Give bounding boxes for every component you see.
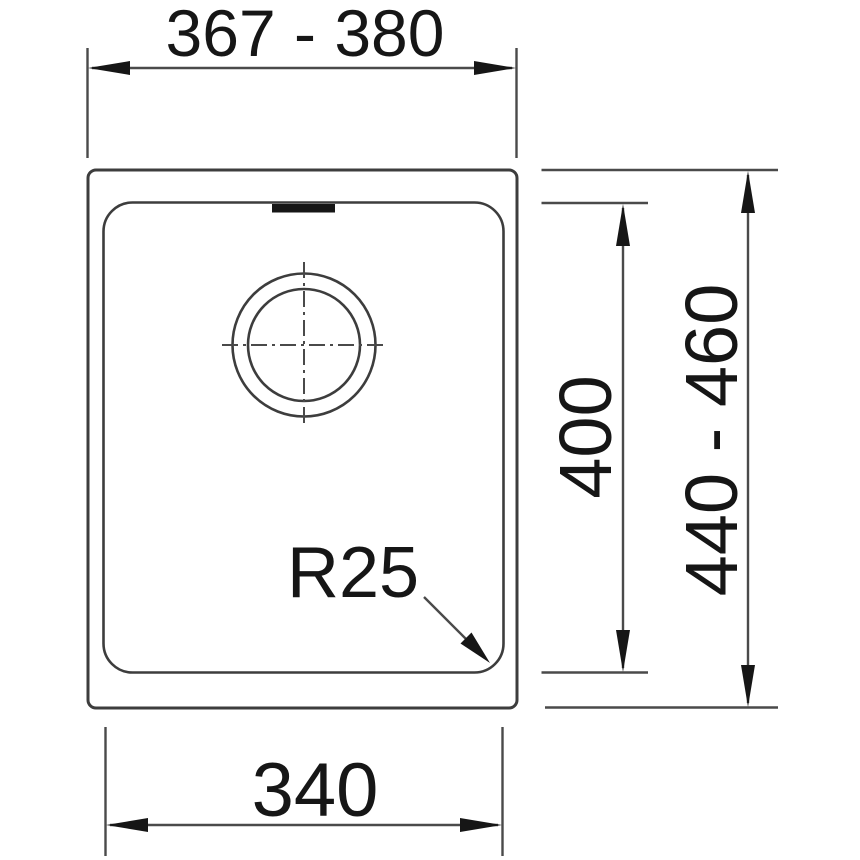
arrowhead-left-icon <box>88 61 130 75</box>
arrowhead-down-icon <box>741 665 755 707</box>
dimension-bowl-depth: 400 <box>542 203 649 673</box>
overflow-slot <box>272 204 335 213</box>
drain <box>222 262 387 428</box>
technical-drawing-canvas: 367 - 380 400 440 - 460 340 <box>0 0 860 860</box>
arrowhead-right-icon <box>460 818 502 832</box>
arrowhead-up-icon <box>741 171 755 213</box>
corner-radius-callout: R25 <box>287 533 490 663</box>
dimension-cutout-width: 367 - 380 <box>88 0 517 158</box>
sink-dimension-drawing: 367 - 380 400 440 - 460 340 <box>0 0 860 860</box>
bowl-width-label: 340 <box>252 748 379 833</box>
arrowhead-left-icon <box>106 818 148 832</box>
arrowhead-right-icon <box>474 61 516 75</box>
cutout-width-label: 367 - 380 <box>166 0 445 70</box>
arrowhead-up-icon <box>616 204 630 246</box>
dimension-bowl-width: 340 <box>106 727 503 856</box>
cutout-depth-label: 440 - 460 <box>670 284 753 597</box>
bowl-depth-label: 400 <box>544 375 627 498</box>
corner-radius-label: R25 <box>287 533 419 613</box>
arrowhead-down-icon <box>616 630 630 672</box>
leader-line <box>424 597 467 640</box>
